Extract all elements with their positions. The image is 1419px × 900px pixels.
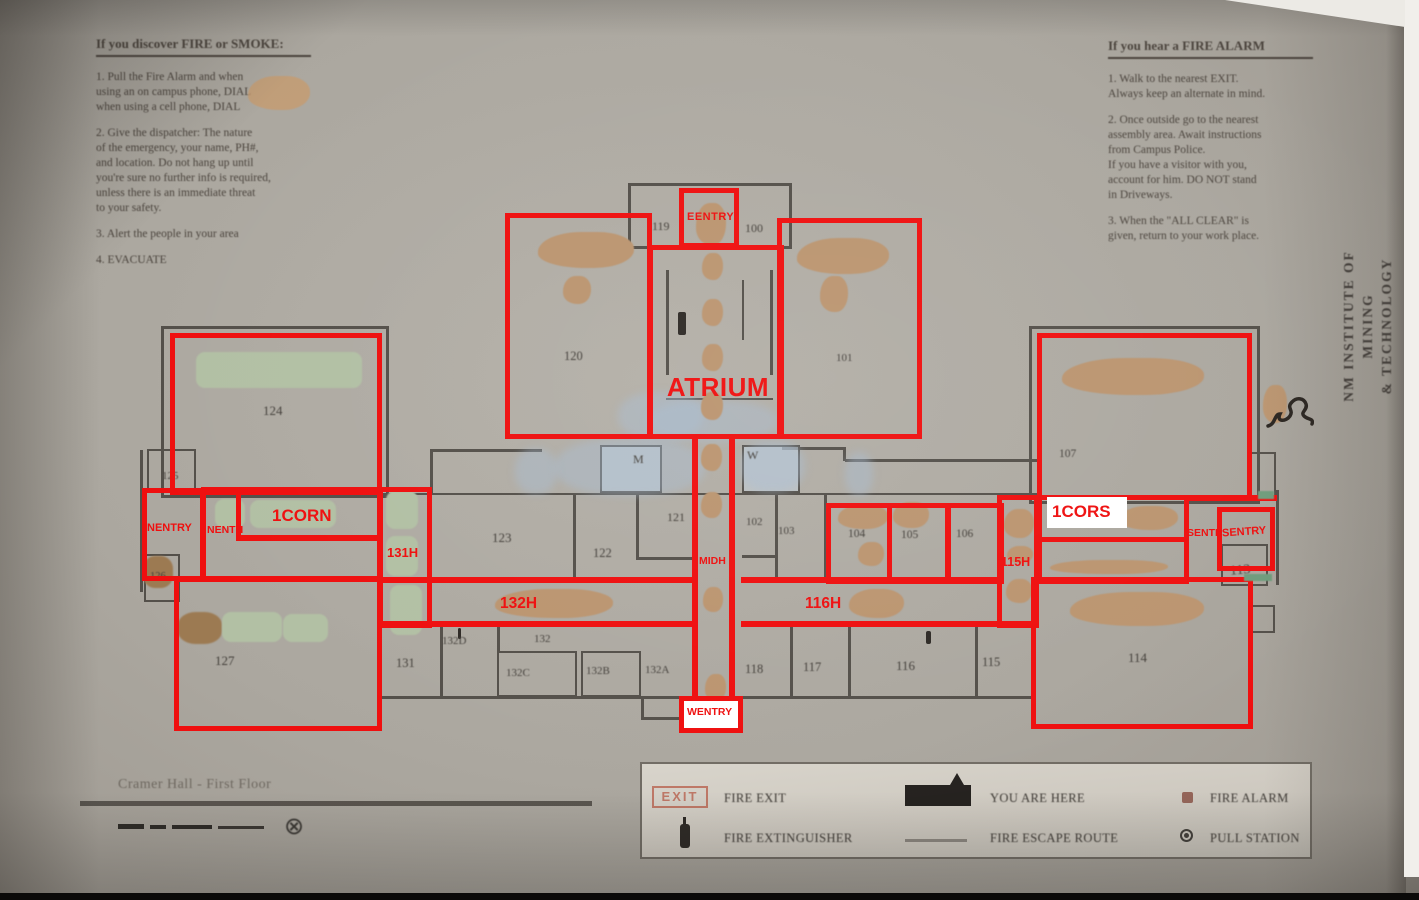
compass-icon: ⊗ <box>284 812 304 841</box>
room-label: 100 <box>745 221 763 236</box>
plan-wall <box>775 495 778 579</box>
1corn-label: 1CORN <box>272 506 332 526</box>
you-are-here-icon <box>950 773 964 785</box>
map-caption: Cramer Hall - First Floor <box>118 777 271 793</box>
room-label: 121 <box>667 510 685 525</box>
plan-wall <box>742 555 775 558</box>
right-instructions-title: If you hear a FIRE ALARM <box>1108 38 1313 59</box>
escape-route-line <box>378 621 698 627</box>
room-label: 132C <box>506 667 530 679</box>
side-text-line: NM INSTITUTE OF <box>1339 201 1358 451</box>
room-label: 119 <box>652 219 670 234</box>
left-instructions-title: If you discover FIRE or SMOKE: <box>96 36 311 57</box>
senth-label: SENTH <box>1187 527 1223 539</box>
zone-box-nentry <box>142 488 205 581</box>
zone-box-101 <box>777 218 922 439</box>
room-label: 132A <box>645 664 669 676</box>
legend-label: FIRE ESCAPE ROUTE <box>990 831 1118 846</box>
plan-mark <box>1244 574 1272 581</box>
room-label: 118 <box>745 662 763 677</box>
escape-route-line <box>741 621 1039 627</box>
plan-wall <box>1250 605 1275 633</box>
legend-label: FIRE ALARM <box>1210 791 1289 806</box>
zone-box-114 <box>1031 577 1253 729</box>
room-label: 117 <box>803 660 821 675</box>
pull-station-icon <box>1184 833 1189 838</box>
zone-box-124 <box>170 333 382 495</box>
escape-route-line <box>1042 537 1184 542</box>
room-label: 132D <box>442 635 466 647</box>
escape-route-line <box>692 437 698 733</box>
legend-label: PULL STATION <box>1210 831 1300 846</box>
page-edge <box>1404 0 1419 877</box>
side-text-line: MINING <box>1358 201 1377 451</box>
1cors-label: 1CORS <box>1052 502 1111 522</box>
photo-tint <box>515 448 557 494</box>
redaction-blob <box>849 589 904 618</box>
legend-label: FIRE EXTINGUISHER <box>724 831 853 846</box>
redaction-blob <box>703 587 723 612</box>
evacuation-map-photo: If you discover FIRE or SMOKE: 1. Pull t… <box>0 0 1419 900</box>
132h-label: 132H <box>500 595 537 613</box>
room-label: 131 <box>396 656 415 671</box>
escape-route-line <box>239 535 379 541</box>
room-label: W <box>747 448 758 463</box>
atrium-label: ATRIUM <box>658 372 778 403</box>
redaction-blob <box>701 492 722 518</box>
plan-wall <box>641 697 644 719</box>
escape-route-line <box>729 437 735 733</box>
zone-box-127 <box>174 577 382 731</box>
route-line-icon <box>905 839 967 842</box>
room-label: 115 <box>982 655 1000 670</box>
plan-wall <box>636 557 697 560</box>
nentry-label: NENTRY <box>147 522 192 534</box>
room-label: 132 <box>534 633 551 645</box>
wentry-label: WENTRY <box>687 706 732 718</box>
plan-wall <box>975 627 978 697</box>
page-corner <box>1225 0 1405 27</box>
zone-box-107 <box>1037 333 1252 500</box>
right-instructions-body: 1. Walk to the nearest EXIT.Always keep … <box>1108 72 1313 244</box>
plan-wall <box>573 495 576 579</box>
squiggle-mark-icon <box>1262 376 1314 436</box>
plan-wall <box>848 627 851 697</box>
zone-box-106 <box>946 503 1004 584</box>
midh-label: MIDH <box>699 555 726 567</box>
nenth-label: NENTH <box>207 524 243 536</box>
plan-wall <box>1276 490 1279 585</box>
legend-panel: EXIT FIRE EXIT FIRE EXTINGUISHER YOU ARE… <box>640 762 1312 859</box>
exit-sign-icon: EXIT <box>652 786 708 808</box>
escape-route-line <box>887 508 892 579</box>
scale-bar <box>172 825 212 829</box>
room-label: 132B <box>586 665 610 677</box>
legend-label: FIRE EXIT <box>724 791 786 806</box>
plan-wall <box>497 627 500 653</box>
room-label: 123 <box>492 530 512 546</box>
116h-label: 116H <box>805 595 841 613</box>
room-label: 122 <box>593 546 612 561</box>
115h-label: 115H <box>1001 555 1030 569</box>
plan-wall <box>790 627 793 697</box>
right-instructions: If you hear a FIRE ALARM 1. Walk to the … <box>1108 38 1313 244</box>
fire-alarm-icon <box>1182 792 1193 803</box>
zone-box-120 <box>505 213 652 439</box>
page-crease <box>1386 0 1406 893</box>
plan-wall <box>845 459 1039 462</box>
fire-extinguisher-icon <box>680 824 690 848</box>
scale-bar <box>118 824 144 829</box>
escape-route-line <box>378 577 698 583</box>
legend-label: YOU ARE HERE <box>990 791 1085 806</box>
plan-mark <box>1258 491 1274 499</box>
room-label: 116 <box>896 658 915 674</box>
scale-bar <box>218 826 264 829</box>
room-label: 102 <box>746 516 763 528</box>
room-label: 103 <box>778 525 795 537</box>
131h-label: 131H <box>387 545 418 560</box>
redaction-blob <box>701 444 722 471</box>
scale-bar <box>150 825 166 829</box>
photo-tint <box>555 438 705 496</box>
eentry-label: EENTRY <box>687 211 734 223</box>
room-label: M <box>633 452 644 467</box>
redaction-blob <box>248 76 310 110</box>
zone-box-atrium <box>648 245 784 439</box>
photo-border <box>0 893 1419 900</box>
plan-wall <box>636 495 639 560</box>
fire-extinguisher-mark <box>926 631 931 644</box>
left-instructions: If you discover FIRE or SMOKE: 1. Pull t… <box>96 36 311 268</box>
you-are-here-icon <box>905 785 971 806</box>
photo-tint <box>845 452 873 496</box>
caption-rule <box>80 801 592 806</box>
